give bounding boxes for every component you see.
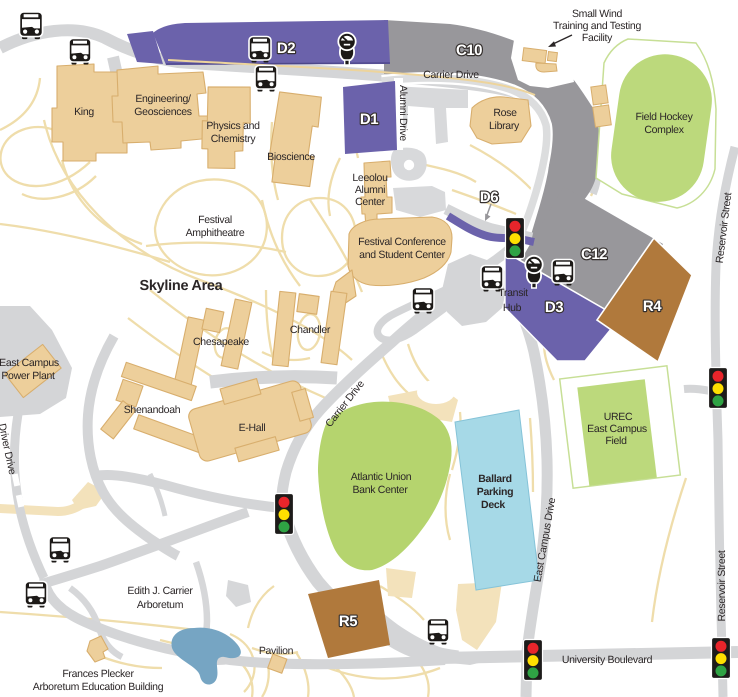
svg-text:Bioscience: Bioscience [267,151,315,163]
svg-text:Amphitheatre: Amphitheatre [186,227,245,239]
svg-text:Library: Library [489,120,520,132]
svg-text:Reservoir Street: Reservoir Street [716,550,728,621]
svg-text:Arboretum Education Building: Arboretum Education Building [33,681,164,693]
svg-text:E-Hall: E-Hall [239,422,266,434]
svg-text:Festival: Festival [198,214,232,226]
svg-text:Complex: Complex [644,124,684,136]
svg-text:Leeolou: Leeolou [352,172,388,184]
svg-text:D2: D2 [277,40,295,57]
svg-text:Parking: Parking [477,486,513,498]
svg-text:Engineering/: Engineering/ [135,93,191,105]
svg-text:UREC: UREC [604,411,633,423]
svg-text:R4: R4 [643,298,662,315]
svg-text:Alumni Drive: Alumni Drive [397,85,409,141]
svg-text:Festival Conference: Festival Conference [358,236,446,248]
svg-text:Facility: Facility [582,32,613,44]
svg-text:C12: C12 [581,246,607,263]
svg-text:University Boulevard: University Boulevard [562,654,653,666]
svg-text:Rose: Rose [493,107,517,119]
svg-text:Chandler: Chandler [290,324,331,336]
svg-text:Deck: Deck [481,499,505,511]
svg-text:Chemistry: Chemistry [211,133,257,145]
svg-text:East Campus: East Campus [587,423,647,435]
svg-text:Bank Center: Bank Center [352,484,408,496]
svg-text:Shenandoah: Shenandoah [124,404,181,416]
svg-text:Center: Center [355,196,386,208]
svg-text:Ballard: Ballard [478,473,512,485]
svg-text:Edith J. Carrier: Edith J. Carrier [127,585,193,597]
svg-text:Geosciences: Geosciences [134,106,191,118]
svg-text:East Campus: East Campus [0,357,59,369]
svg-text:Field Hockey: Field Hockey [635,111,693,123]
svg-text:Atlantic Union: Atlantic Union [351,471,412,483]
svg-text:R5: R5 [339,613,357,630]
svg-text:D1: D1 [360,111,378,128]
svg-text:Alumni: Alumni [355,184,385,196]
svg-text:Field: Field [605,435,627,447]
svg-text:Physics and: Physics and [206,120,260,132]
svg-text:Frances Plecker: Frances Plecker [62,668,134,680]
svg-text:Pavilion: Pavilion [259,645,294,657]
svg-text:Carrier Drive: Carrier Drive [423,69,479,81]
svg-text:Transit: Transit [498,287,528,299]
svg-text:Hub: Hub [503,302,522,314]
svg-text:C10: C10 [456,42,482,59]
svg-text:Training and Testing: Training and Testing [553,20,641,32]
svg-text:Small Wind: Small Wind [572,8,623,20]
svg-text:and Student Center: and Student Center [359,249,445,261]
svg-text:King: King [74,106,94,118]
svg-text:Arboretum: Arboretum [137,599,184,611]
svg-text:D3: D3 [545,299,563,316]
svg-text:D6: D6 [480,189,498,206]
svg-text:Power Plant: Power Plant [1,370,55,382]
svg-text:Skyline Area: Skyline Area [140,278,224,294]
svg-text:Chesapeake: Chesapeake [193,336,249,348]
